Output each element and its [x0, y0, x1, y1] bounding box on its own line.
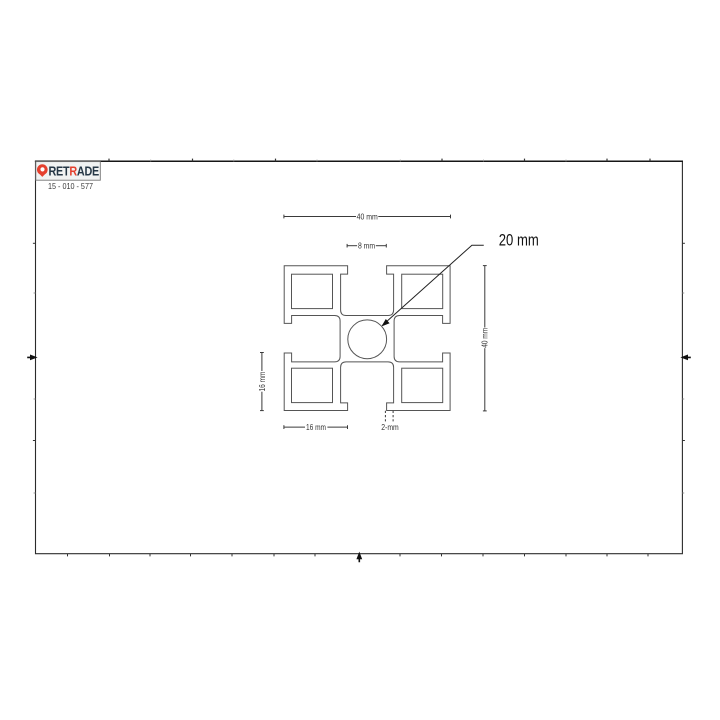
svg-text:15 - 010 - 577: 15 - 010 - 577 — [48, 182, 93, 191]
svg-text:40 mm: 40 mm — [357, 212, 378, 221]
svg-text:16 mm: 16 mm — [258, 371, 267, 391]
svg-text:40 mm: 40 mm — [481, 328, 490, 348]
svg-text:2-mm: 2-mm — [381, 423, 399, 432]
svg-text:20 mm: 20 mm — [499, 232, 539, 250]
svg-text:RETRADE: RETRADE — [49, 163, 100, 178]
svg-text:16 mm: 16 mm — [306, 423, 326, 432]
svg-text:8 mm: 8 mm — [358, 241, 375, 250]
